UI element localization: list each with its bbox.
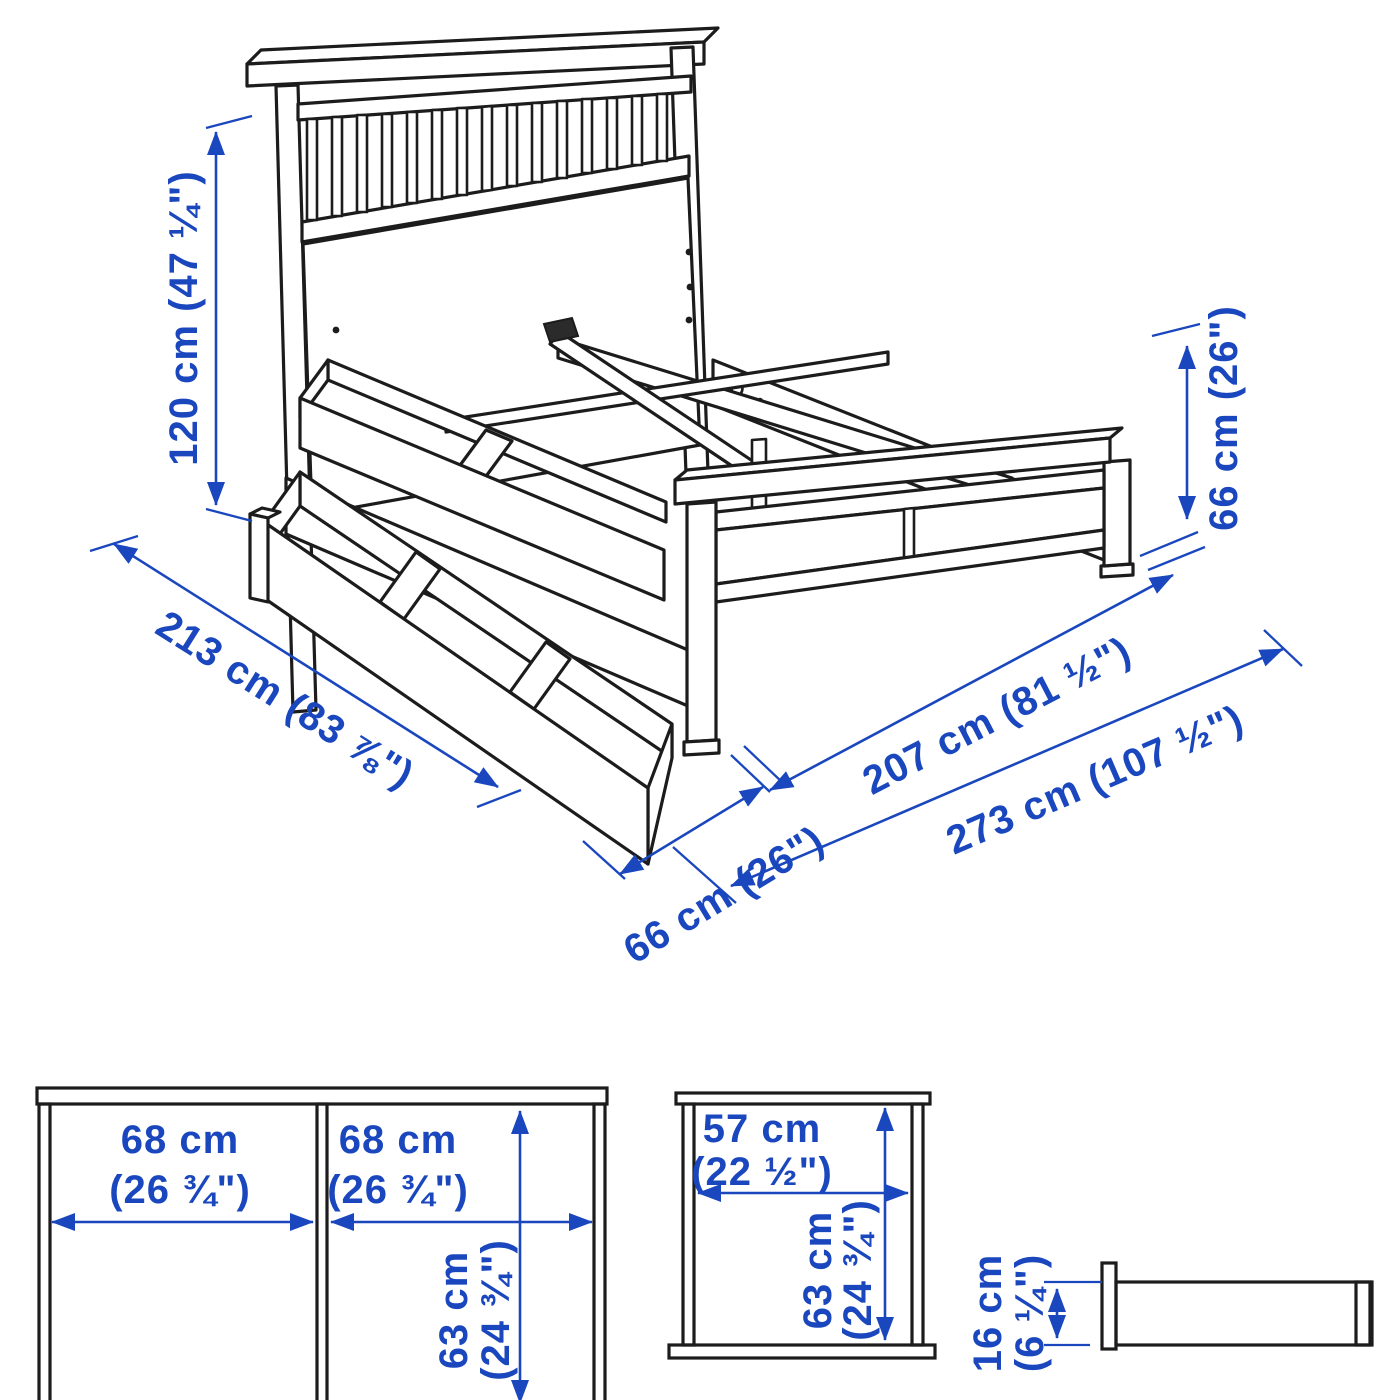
storage-box-top-view: 57 cm (22 ½") 63 cm (24 ¾") [669, 1093, 935, 1358]
dimension-footboard-height-66: 66 cm (26") [1140, 305, 1246, 556]
front-left-width-line1: 68 cm [121, 1118, 239, 1162]
dimension-diagram-page: 120 cm (47 ¼") 213 cm (83 ⅞") 66 cm (26"… [0, 0, 1400, 1400]
dimension-height-120: 120 cm (47 ¼") [162, 116, 252, 521]
front-left-width-line2: (26 ¾") [109, 1168, 251, 1212]
top-width-line1: 57 cm [703, 1107, 821, 1151]
bed-dimension-diagram: 120 cm (47 ¼") 213 cm (83 ⅞") 66 cm (26"… [0, 0, 1400, 1400]
top-depth-line1: 63 cm [796, 1211, 840, 1329]
side-height-line1: 16 cm [966, 1254, 1010, 1372]
front-depth-line2: (24 ¾") [474, 1239, 518, 1381]
dim-label-120: 120 cm (47 ¼") [162, 170, 206, 465]
storage-box-front-view: 68 cm (26 ¾") 68 cm (26 ¾") 63 cm (24 ¾"… [29, 1088, 613, 1400]
top-width-line2: (22 ½") [691, 1150, 833, 1194]
top-depth-line2: (24 ¾") [836, 1199, 880, 1341]
front-right-width-line1: 68 cm [339, 1118, 457, 1162]
footboard-near-post [684, 502, 719, 755]
side-height-line2: (6 ¼") [1008, 1254, 1052, 1372]
storage-box-side-view: 16 cm (6 ¼") [966, 1254, 1372, 1372]
front-right-width-line2: (26 ¾") [327, 1168, 469, 1212]
front-depth-line1: 63 cm [432, 1251, 476, 1369]
dim-label-66-right: 66 cm (26") [1202, 305, 1246, 531]
